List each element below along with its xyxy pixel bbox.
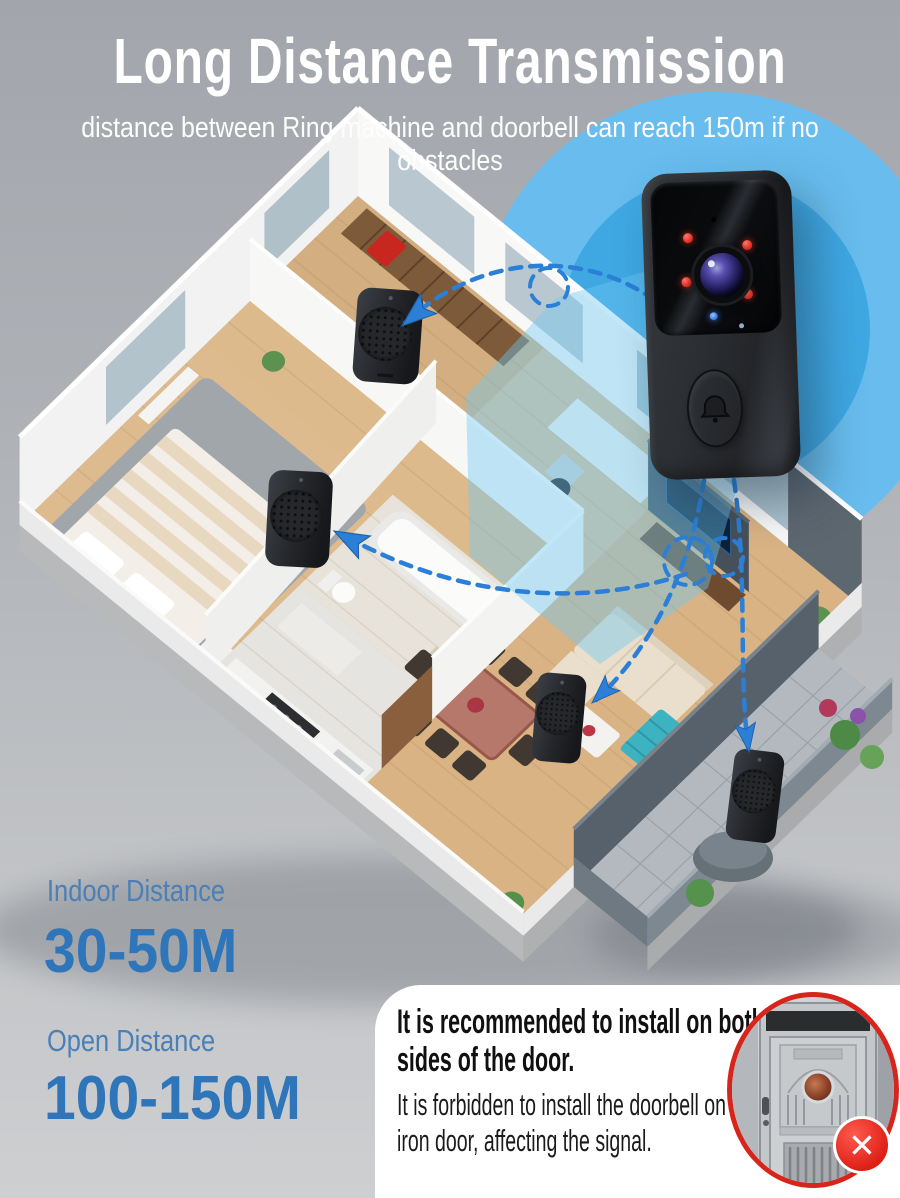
mic-hole-icon: [711, 217, 716, 222]
page-title: Long Distance Transmission: [113, 24, 788, 98]
doorbell-camera-panel: [650, 179, 782, 336]
chime-receiver-2: [265, 469, 334, 568]
chime-receiver-3: [531, 672, 587, 765]
install-note-card: It is recommended to install on both sid…: [375, 985, 900, 1198]
status-led-icon: [739, 323, 744, 328]
chime-receiver-1: [352, 287, 424, 385]
bell-icon: [699, 391, 730, 426]
bell-button: [686, 368, 745, 448]
page-subtitle: distance between Ring machine and doorbe…: [63, 112, 837, 178]
ir-led-icon: [683, 233, 693, 243]
status-led-icon: [710, 312, 718, 320]
poster: Long Distance Transmission distance betw…: [0, 0, 900, 1198]
open-distance-value: 100-150M: [44, 1063, 301, 1134]
ir-led-icon: [742, 240, 752, 250]
indoor-distance-value: 30-50M: [44, 916, 237, 987]
indoor-distance-label: Indoor Distance: [47, 873, 225, 909]
x-icon: ✕: [836, 1119, 888, 1171]
ir-led-icon: [681, 277, 691, 287]
video-doorbell: [641, 169, 802, 480]
open-distance-label: Open Distance: [47, 1023, 215, 1059]
note-title: It is recommended to install on both sid…: [397, 1003, 775, 1079]
